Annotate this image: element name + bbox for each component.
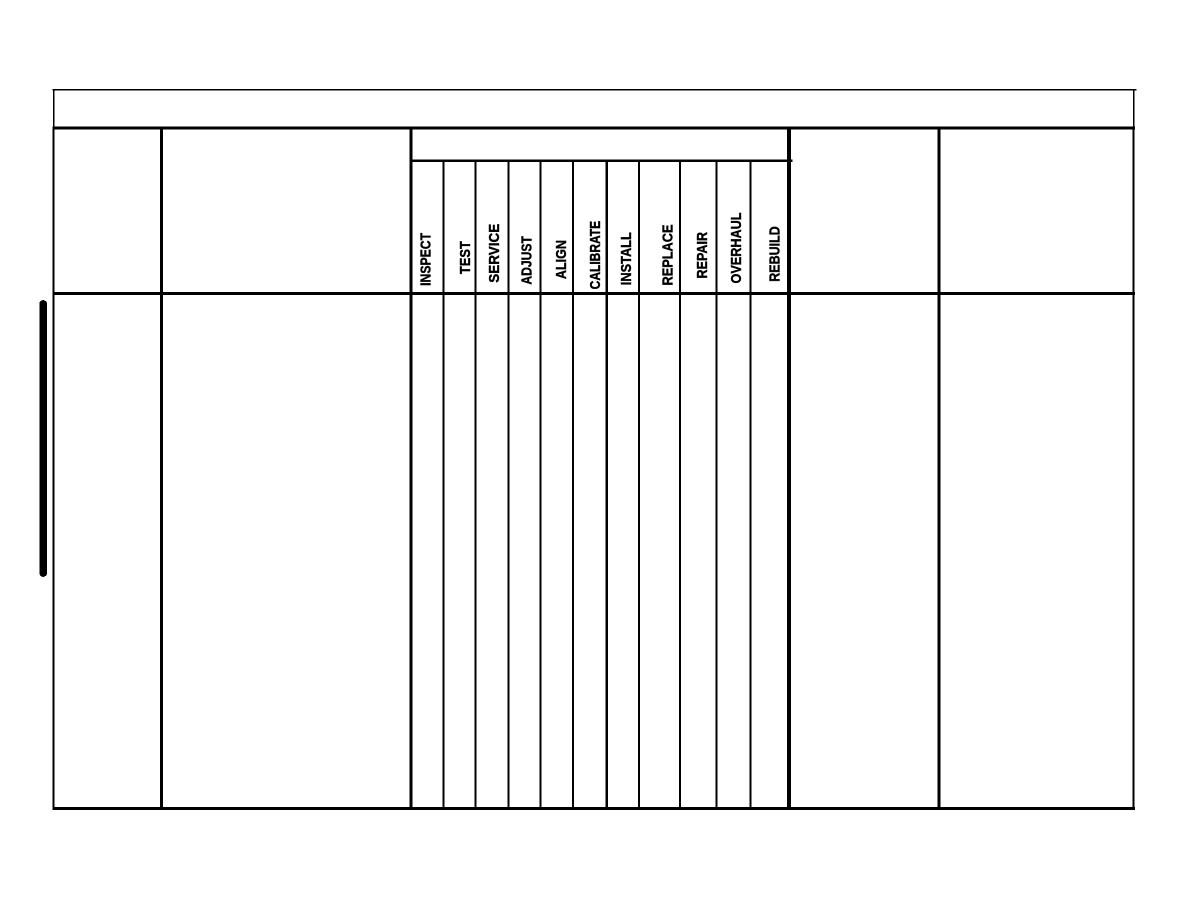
svg-text:CALIBRATE: CALIBRATE	[587, 221, 604, 290]
svg-text:TEST: TEST	[457, 241, 474, 274]
svg-text:REPAIR: REPAIR	[694, 232, 711, 279]
svg-text:OVERHAUL: OVERHAUL	[728, 213, 745, 284]
svg-text:SERVICE: SERVICE	[486, 224, 503, 283]
svg-text:ADJUST: ADJUST	[519, 236, 536, 285]
svg-text:INSTALL: INSTALL	[618, 232, 635, 285]
svg-text:REBUILD: REBUILD	[767, 226, 784, 282]
svg-text:ALIGN: ALIGN	[553, 240, 570, 279]
svg-text:REPLACE: REPLACE	[660, 225, 677, 286]
svg-text:INSPECT: INSPECT	[417, 233, 434, 286]
